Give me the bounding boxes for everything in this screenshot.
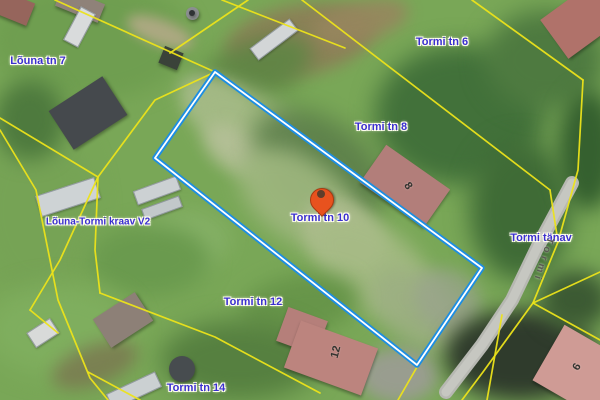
cadastral-boundary-line [30,310,58,333]
cadastral-boundary-line [100,293,320,393]
cadastral-boundary-line [55,0,215,72]
cadastral-boundary-line [558,80,583,242]
selected-parcel-outline-core [155,72,482,365]
cadastral-boundary-line [472,0,583,80]
aerial-map-canvas[interactable]: Lõuna tn 7Tormi tn 6Tormi tn 8Tormi tn 1… [0,0,600,400]
cadastral-boundary-line [398,367,417,400]
cadastral-boundary-line [95,177,100,293]
cadastral-boundary-line [0,118,98,177]
map-pin-hole [317,190,325,198]
cadastral-boundary-line [30,177,98,310]
cadastral-boundary-line [170,0,248,53]
cadastral-boundary-line [222,0,345,48]
cadastral-boundary-line [0,130,108,400]
cadastral-boundary-line [533,303,600,340]
boundary-overlay [0,0,600,400]
selected-parcel-outline[interactable] [155,72,482,365]
